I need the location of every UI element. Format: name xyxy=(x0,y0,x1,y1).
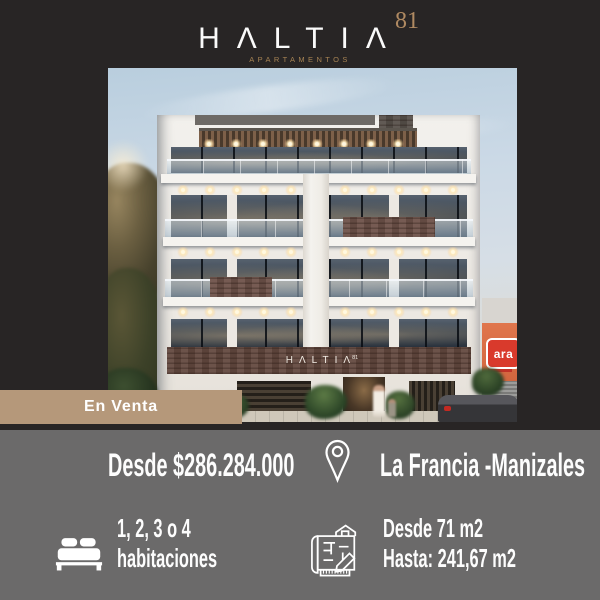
store-sign-text: ara xyxy=(494,347,514,361)
roof-slab xyxy=(195,115,375,125)
brick-balcony-front xyxy=(343,217,435,239)
location-pin-icon xyxy=(324,439,351,483)
facade-pier xyxy=(389,319,399,347)
rooms-line1: 1, 2, 3 o 4 xyxy=(117,514,217,544)
brand-logo-superscript: 81 xyxy=(395,8,419,35)
price-label: Desde $286.284.000 xyxy=(108,447,294,484)
building-photo: HΛLTIΛ 81 ara xyxy=(108,68,517,422)
pedestrian xyxy=(373,385,385,417)
flyer-poster: HΛLTIΛ 81 APARTAMENTOS xyxy=(0,0,600,600)
details-panel: $ Desde $286.284.000 La Francia -Manizal… xyxy=(0,430,600,600)
store-sign: ara xyxy=(486,338,517,369)
building-sign-superscript: 81 xyxy=(352,355,358,361)
area-line2: Hasta: 241,67 m2 xyxy=(383,544,516,574)
building-sign-band: HΛLTIΛ 81 xyxy=(167,347,471,374)
brand-tagline: APARTAMENTOS xyxy=(0,55,600,64)
pedestrian-child xyxy=(388,399,396,417)
bed-icon xyxy=(55,533,103,571)
car-taillight xyxy=(444,406,451,411)
facade-pier xyxy=(227,319,237,347)
brand-logo: HΛLTIΛ 81 xyxy=(0,22,600,56)
status-badge: En Venta xyxy=(0,390,242,424)
central-column xyxy=(303,174,329,347)
brand-logo-text: HΛLTIΛ xyxy=(181,22,403,56)
neighbor-wall xyxy=(482,298,517,325)
rooms-line2: habitaciones xyxy=(117,544,217,574)
blueprint-icon xyxy=(310,523,362,580)
area-line1: Desde 71 m2 xyxy=(383,514,516,544)
building-sign-text: HΛLTIΛ xyxy=(280,355,356,366)
rooms-label: 1, 2, 3 o 4 habitaciones xyxy=(117,514,276,573)
brick-balcony-front xyxy=(210,277,272,299)
area-label: Desde 71 m2 Hasta: 241,67 m2 xyxy=(383,514,594,573)
building-facade: HΛLTIΛ 81 xyxy=(157,115,480,422)
location-label: La Francia -Manizales xyxy=(380,447,585,484)
